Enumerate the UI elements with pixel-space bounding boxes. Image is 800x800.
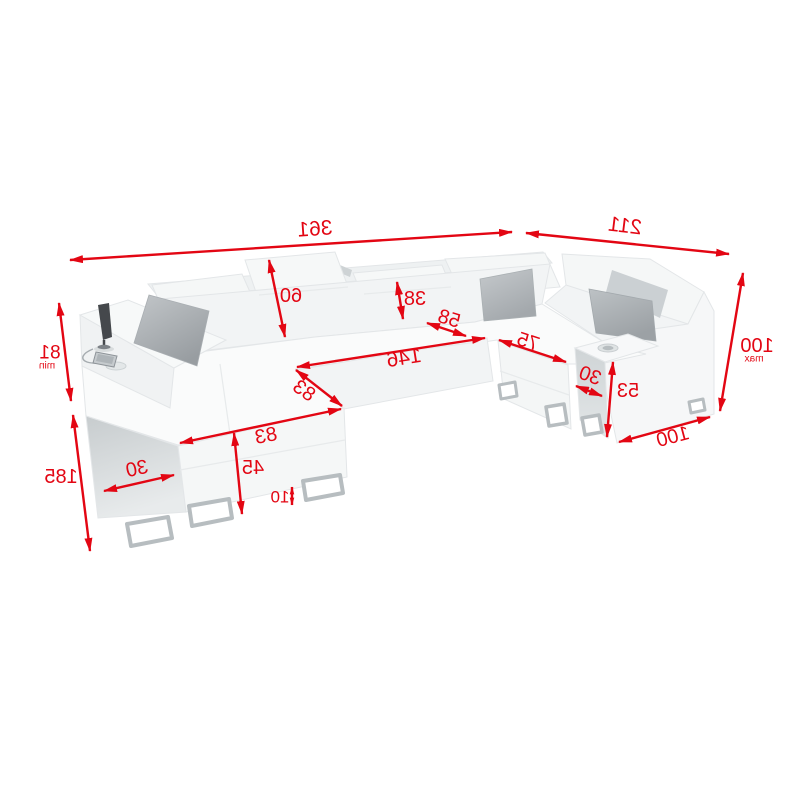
dim-label-right-armrest-height: 53 — [617, 380, 639, 402]
sofa-leg — [127, 517, 172, 546]
dim-label-leg-height: 10 — [271, 488, 290, 507]
sofa-leg — [189, 499, 232, 526]
dim-label-headrest-large: 60 — [280, 285, 302, 307]
dim-line-height-max — [720, 273, 743, 411]
dim-label-chaise-length: 185 — [44, 466, 77, 488]
dim-label-total-width: 361 — [297, 216, 334, 241]
dim-label-armrest-height-min-suffix: min — [39, 361, 55, 372]
sofa-leg — [303, 475, 343, 500]
sofa-leg — [582, 415, 602, 435]
dim-label-side-depth: 211 — [607, 213, 643, 240]
cup-holder-inner — [603, 346, 614, 350]
sofa-dimension-diagram: 361 211 100 max 100 53 30 75 58 146 83 8… — [0, 0, 800, 800]
diagram-canvas: 361 211 100 max 100 53 30 75 58 146 83 8… — [0, 0, 800, 800]
dim-label-headrest-small: 38 — [404, 288, 426, 310]
dim-label-height-max-suffix: max — [745, 354, 764, 365]
dim-label-bed-width-front: 83 — [253, 423, 279, 449]
sofa-leg — [546, 404, 567, 426]
dim-label-chaise-side-width: 30 — [124, 456, 150, 482]
lamp-base — [98, 345, 111, 349]
sofa-leg — [499, 382, 517, 399]
dim-label-seat-height: 45 — [242, 457, 264, 479]
sofa-leg — [689, 399, 705, 413]
